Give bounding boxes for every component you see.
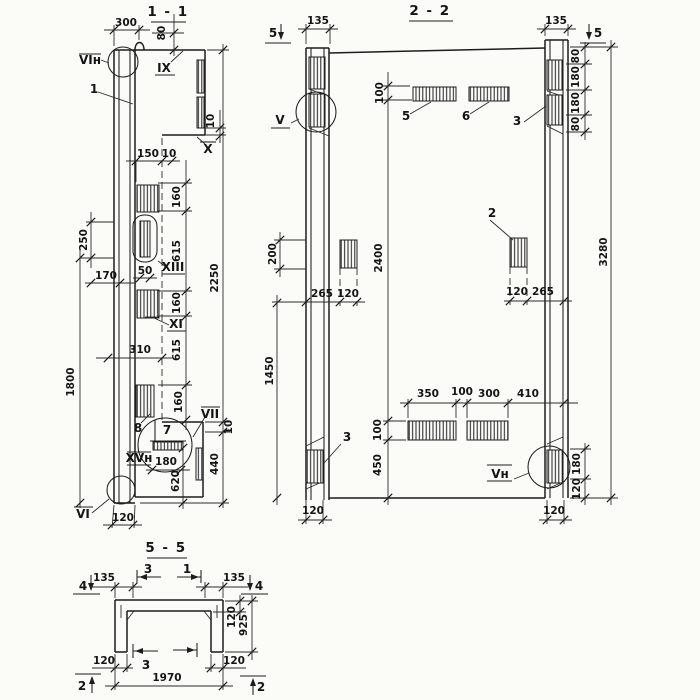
embedded-plate: [547, 60, 562, 90]
embedded-plate: [309, 57, 325, 89]
cut-mark-5-right: 5: [594, 26, 602, 40]
cut-mark-2-left: 2: [78, 679, 86, 693]
dim-160-c: 160: [173, 391, 185, 413]
dim-135-right: 135: [545, 15, 567, 27]
embedded-plate: [196, 448, 203, 480]
dim-410: 410: [517, 388, 539, 400]
dim-1450: 1450: [264, 356, 276, 385]
cut-mark-4-right: 4: [255, 579, 263, 593]
dim-120: 120: [112, 512, 134, 524]
cut-mark-4-left: 4: [79, 579, 87, 593]
embedded-plate: [547, 450, 563, 483]
dim-150: 150: [137, 148, 159, 160]
detail-circle-bottom: [107, 476, 135, 504]
dim-120-bottom-left: 120: [93, 655, 115, 667]
dim-80-a: 80: [570, 49, 582, 64]
rebar-mark-3-bottom: 3: [142, 658, 150, 672]
embedded-plate: [197, 97, 204, 128]
dim-265-right: 265: [532, 286, 554, 298]
section-2-2: 2 - 2: [264, 3, 618, 524]
dim-160-a: 160: [171, 186, 183, 208]
embedded-plate: [137, 185, 159, 212]
dim-120-br: 120: [571, 478, 583, 500]
dim-620: 620: [170, 470, 182, 492]
dim-10-mid: 10: [162, 148, 177, 160]
dim-10-top: 10: [205, 114, 217, 129]
rebar-mark-1-top: 1: [183, 562, 191, 576]
dim-450: 450: [372, 454, 384, 476]
cut-mark-2-right: 2: [257, 680, 265, 694]
section-5-5: 5 - 5: [73, 540, 268, 695]
label-pos-2: 2: [488, 206, 496, 220]
label-VIn: VIн: [79, 53, 101, 67]
label-pos-3-top: 3: [513, 114, 521, 128]
structural-drawing: 1 - 1: [0, 0, 700, 700]
dim-160-b: 160: [171, 292, 183, 314]
label-pos-3-bottom: 3: [343, 430, 351, 444]
dim-10-bottom: 10: [223, 420, 235, 435]
label-XVn: XVн: [126, 451, 153, 465]
label-pos-8: 8: [134, 421, 142, 435]
embedded-plate: [197, 60, 204, 93]
embedded-plate: [306, 450, 323, 483]
label-XIII: XIII: [162, 260, 185, 274]
dim-440: 440: [209, 453, 221, 475]
section-title-1-1: 1 - 1: [147, 4, 188, 20]
label-X: X: [203, 142, 213, 156]
dim-135-left: 135: [93, 572, 115, 584]
dim-120-flange: 120: [226, 606, 238, 628]
dim-180-br: 180: [571, 453, 583, 475]
label-pos-6: 6: [462, 109, 470, 123]
dim-80-b: 80: [570, 117, 582, 132]
dim-300: 300: [478, 388, 500, 400]
embedded-plate: [136, 385, 154, 417]
dim-120-right: 120: [506, 286, 528, 298]
dim-200: 200: [267, 243, 279, 265]
drawing-sheet: 1 - 1: [0, 0, 700, 700]
dim-180-b: 180: [570, 92, 582, 114]
dim-135-left: 135: [307, 15, 329, 27]
dim-100-bottom: 100: [372, 419, 384, 441]
dim-120-col-left: 120: [302, 505, 324, 517]
detail-circle-top: [108, 47, 138, 77]
embedded-plate: [547, 95, 562, 125]
dim-310: 310: [129, 344, 151, 356]
embedded-plate: [413, 87, 456, 101]
dim-615-a: 615: [171, 240, 183, 262]
dim-615-b: 615: [171, 339, 183, 361]
section-1-1: 1 - 1: [65, 4, 235, 529]
dim-300: 300: [115, 17, 137, 29]
dim-120-left: 120: [337, 288, 359, 300]
label-pos-5: 5: [402, 109, 410, 123]
label-V: V: [275, 113, 285, 127]
dim-2400: 2400: [373, 243, 385, 272]
dim-50: 50: [138, 265, 153, 277]
column-outline-1-1: [114, 43, 205, 504]
embedded-plate: [469, 87, 509, 101]
label-IX: IX: [157, 61, 171, 75]
dim-1800: 1800: [65, 367, 77, 396]
section-title-2-2: 2 - 2: [409, 3, 450, 19]
dim-100-top: 100: [374, 82, 386, 104]
dim-80: 80: [156, 26, 168, 41]
dim-180-a: 180: [570, 66, 582, 88]
dim-265-left: 265: [311, 288, 333, 300]
dim-170: 170: [95, 270, 117, 282]
dim-120-bottom-right: 120: [223, 655, 245, 667]
embedded-plate: [137, 290, 159, 318]
dim-2250: 2250: [209, 263, 221, 292]
dim-135-right: 135: [223, 572, 245, 584]
embedded-plate: [140, 221, 150, 257]
cut-mark-5-left: 5: [269, 26, 277, 40]
dim-180: 180: [155, 456, 177, 468]
dim-250: 250: [78, 229, 90, 251]
dim-100-mid: 100: [451, 386, 473, 398]
label-VII: VII: [201, 407, 219, 421]
embedded-plate: [467, 421, 508, 440]
lifting-loop: [135, 43, 144, 51]
dim-120-col-right: 120: [543, 505, 565, 517]
section-title-5-5: 5 - 5: [145, 540, 186, 556]
embedded-plate: [309, 94, 325, 127]
label-Vn: Vн: [491, 467, 509, 481]
dim-350: 350: [417, 388, 439, 400]
dim-925: 925: [238, 614, 250, 636]
embedded-plate: [340, 240, 357, 268]
channel-outline-5-5: [115, 600, 223, 652]
dim-1970: 1970: [152, 672, 181, 684]
label-pos-7: 7: [163, 423, 171, 437]
embedded-plate: [408, 421, 456, 440]
embedded-plate: [510, 238, 527, 267]
rebar-mark-3-top: 3: [144, 562, 152, 576]
label-VI: VI: [76, 507, 90, 521]
label-pos-1: 1: [90, 82, 98, 96]
dim-3280: 3280: [598, 237, 610, 266]
label-XI: XI: [169, 317, 183, 331]
